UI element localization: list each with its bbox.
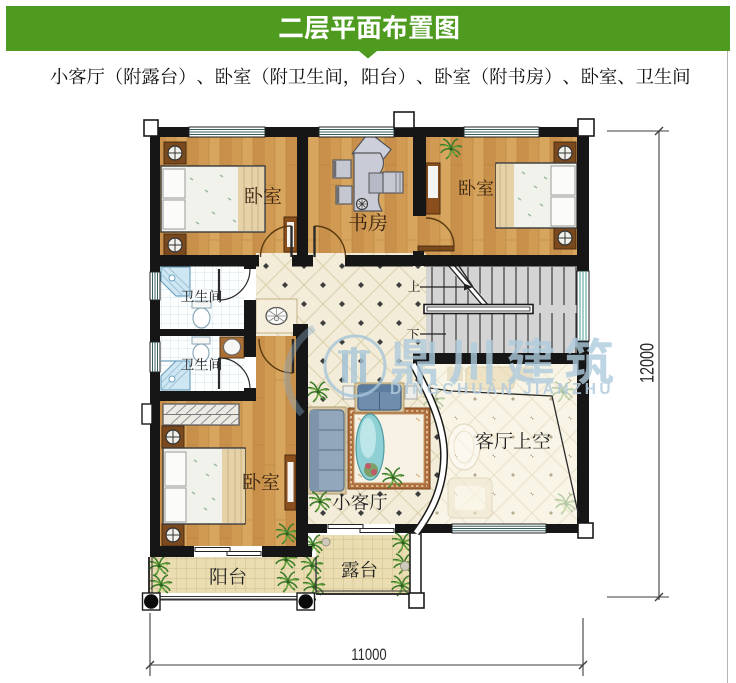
svg-text:DINGCHUAN JIANZHU: DINGCHUAN JIANZHU	[390, 381, 614, 398]
svg-text:11000: 11000	[351, 645, 386, 664]
svg-text:12000: 12000	[637, 343, 658, 383]
